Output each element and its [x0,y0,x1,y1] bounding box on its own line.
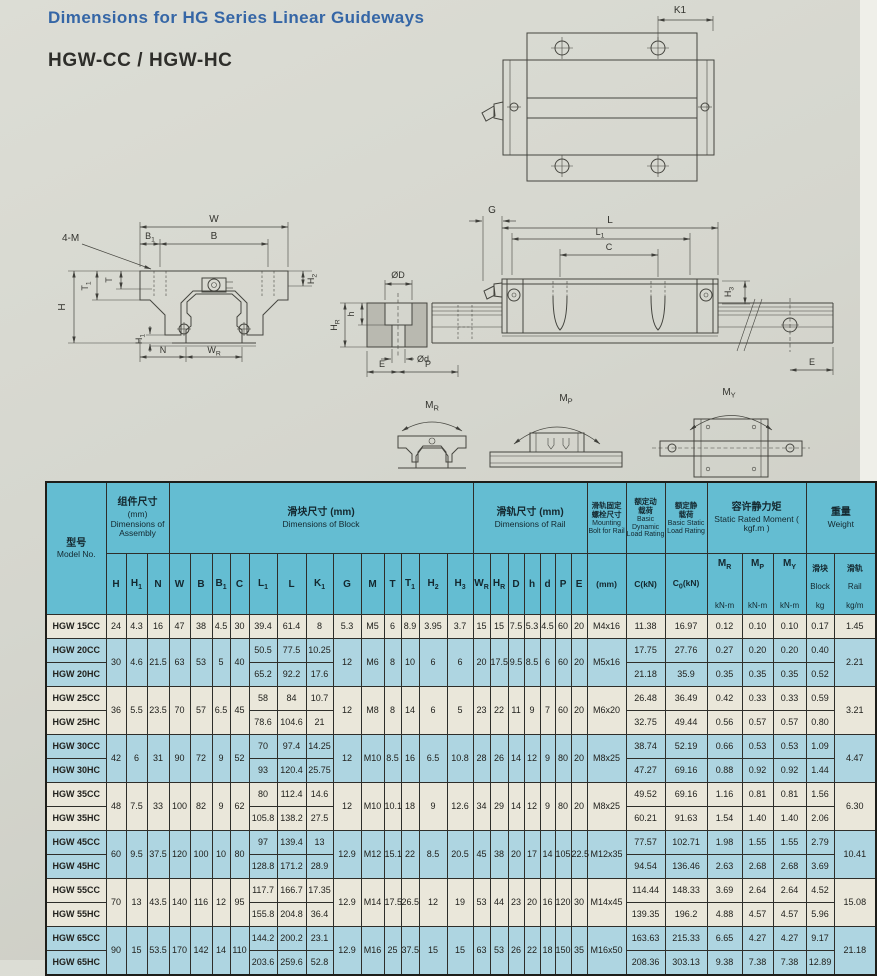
cell-H: 90 [106,927,126,976]
cell-W: 90 [169,735,190,783]
cell-L: 138.2 [277,807,306,831]
cell-W: 170 [169,927,190,976]
col-h-small: h [524,554,540,615]
cell-MP: 0.81 [742,783,773,807]
cell-HR: 17.5 [490,639,508,687]
static-load-header-en: Basic Static Load Rating [666,520,707,535]
cell-B1: 4.5 [212,615,230,639]
dim-label-b1: B1 [145,231,155,244]
cell-B1: 6.5 [212,687,230,735]
cell-d: 16 [540,879,555,927]
cell-N: 31 [147,735,169,783]
cell-C: 47.27 [626,759,665,783]
cell-H3: 19 [447,879,473,927]
cell-L: 204.8 [277,903,306,927]
cell-B: 72 [190,735,212,783]
col-header-model: 型号 Model No. [46,482,106,615]
col-group-moment: 容许静力矩 Static Rated Moment ( kgf.m ) [707,482,806,554]
cell-K1: 52.8 [306,951,333,976]
cell-K1: 10.25 [306,639,333,663]
cell-L1: 105.8 [249,807,277,831]
cell-K1: 36.4 [306,903,333,927]
cell-K1: 23.1 [306,927,333,951]
cell-G: 12 [333,735,361,783]
cell-T1: 10 [401,639,419,687]
cell-W: 100 [169,783,190,831]
cell-H1: 13 [126,879,147,927]
cell-bolt: M6x20 [587,687,626,735]
cell-C: 163.63 [626,927,665,951]
cell-L: 139.4 [277,831,306,855]
col-l1: L1 [249,554,277,615]
moment-my-icon [652,416,810,478]
cell-E: 20 [571,639,587,687]
cell-L1: 144.2 [249,927,277,951]
cell-MY: 4.27 [773,927,806,951]
col-n: N [147,554,169,615]
cell-C: 60.21 [626,807,665,831]
cell-block: 1.56 [806,783,834,807]
cell-E: 35 [571,927,587,976]
dim-label-g: G [488,205,496,216]
table-row: HGW 25CC365.523.570576.545588410.712M881… [46,687,876,711]
cell-C: 45 [230,687,249,735]
cell-MP: 0.33 [742,687,773,711]
cell-M: M6 [361,639,384,687]
cell-MP: 0.92 [742,759,773,783]
cell-MP: 0.53 [742,735,773,759]
cell-H1: 15 [126,927,147,976]
moment-mp-icon [490,427,622,467]
cell-W: 63 [169,639,190,687]
cell-C0: 136.46 [665,855,707,879]
cell-WR: 23 [473,687,490,735]
assembly-header-mm: (mm) [107,510,169,519]
cell-L: 259.6 [277,951,306,976]
cell-MY: 7.38 [773,951,806,976]
cell-B1: 9 [212,735,230,783]
col-l: L [277,554,306,615]
cell-HR: 44 [490,879,508,927]
assembly-header-cn: 组件尺寸 [107,497,169,509]
cell-K1: 27.5 [306,807,333,831]
cell-N: 53.5 [147,927,169,976]
cell-block: 1.09 [806,735,834,759]
cell-B1: 12 [212,879,230,927]
weight-block-cn: 滑块 [812,564,828,573]
cell-H3: 6 [447,639,473,687]
cell-H3: 15 [447,927,473,976]
cell-C: 139.35 [626,903,665,927]
cell-C0: 69.16 [665,759,707,783]
cell-P: 60 [555,639,571,687]
cell-MR: 3.69 [707,879,742,903]
col-bolt-unit: (mm) [587,554,626,615]
bolt-header-en: Mounting Bolt for Rail [588,520,626,535]
catalog-page: { "page": { "title": "Dimensions for HG … [0,0,877,960]
cell-T1: 8.9 [401,615,419,639]
cell-D: 7.5 [508,615,524,639]
dim-label-l: L [607,215,613,226]
block-header-cn: 滑块尺寸 (mm) [170,507,473,519]
moment-header-en: Static Rated Moment ( kgf.m ) [708,515,806,534]
cell-MR: 9.38 [707,951,742,976]
cell-MR: 1.54 [707,807,742,831]
dim-label-w: W [209,214,219,225]
dynamic-load-header-cn: 额定动 载荷 [627,497,665,515]
col-c0-kn: C0(kN) [665,554,707,615]
cell-G: 5.3 [333,615,361,639]
cell-C: 62 [230,783,249,831]
cell-bolt: M16x50 [587,927,626,976]
col-w: W [169,554,190,615]
cell-HR: 29 [490,783,508,831]
cell-E: 22.5 [571,831,587,879]
cell-N: 43.5 [147,879,169,927]
cell-C: 40 [230,639,249,687]
cell-H: 60 [106,831,126,879]
cell-L1: 128.8 [249,855,277,879]
cell-bolt: M8x25 [587,783,626,831]
cell-C0: 16.97 [665,615,707,639]
cell-P: 60 [555,687,571,735]
cell-h: 12 [524,735,540,783]
col-h: H [106,554,126,615]
model-cell: HGW 65CC [46,927,106,951]
cell-H: 42 [106,735,126,783]
cell-MY: 0.35 [773,663,806,687]
cell-block: 9.17 [806,927,834,951]
side-view-drawing: G L L1 C H3 ØD h HR Ød E [329,205,833,377]
mp-unit: kN-m [748,601,767,610]
cell-M: M14 [361,879,384,927]
cell-H: 70 [106,879,126,927]
cell-MR: 0.12 [707,615,742,639]
cell-L: 61.4 [277,615,306,639]
cell-MP: 4.27 [742,927,773,951]
col-weight-block: 滑块Blockkg [806,554,834,615]
cell-WR: 20 [473,639,490,687]
cell-C: 38.74 [626,735,665,759]
col-h3: H3 [447,554,473,615]
model-cell: HGW 20CC [46,639,106,663]
cell-D: 26 [508,927,524,976]
cell-h: 12 [524,783,540,831]
cell-C: 80 [230,831,249,879]
cell-C: 49.52 [626,783,665,807]
cell-MP: 1.40 [742,807,773,831]
cell-H2: 15 [419,927,447,976]
cell-M: M12 [361,831,384,879]
cell-C0: 215.33 [665,927,707,951]
dim-label-4m: 4-M [62,233,79,244]
cell-L1: 117.7 [249,879,277,903]
model-cell: HGW 35HC [46,807,106,831]
assembly-header-en: Dimensions of Assembly [107,520,169,539]
cell-T: 17.5 [384,879,401,927]
cell-K1: 28.9 [306,855,333,879]
cell-HR: 53 [490,927,508,976]
cell-MP: 2.64 [742,879,773,903]
cell-C0: 27.76 [665,639,707,663]
cell-D: 14 [508,735,524,783]
dim-label-od: ØD [391,270,405,280]
cell-MR: 0.88 [707,759,742,783]
dimensions-table: 型号 Model No. 组件尺寸 (mm) Dimensions of Ass… [45,481,877,976]
cell-h: 17 [524,831,540,879]
model-cell: HGW 25CC [46,687,106,711]
col-group-assembly: 组件尺寸 (mm) Dimensions of Assembly [106,482,169,554]
cell-M: M16 [361,927,384,976]
col-group-block: 滑块尺寸 (mm) Dimensions of Block [169,482,473,554]
cell-L1: 70 [249,735,277,759]
cell-L: 166.7 [277,879,306,903]
cell-N: 21.5 [147,639,169,687]
cell-C0: 49.44 [665,711,707,735]
cell-L: 104.6 [277,711,306,735]
cell-P: 80 [555,783,571,831]
cell-E: 30 [571,879,587,927]
cell-H2: 6 [419,687,447,735]
cell-M: M10 [361,783,384,831]
cell-T: 25 [384,927,401,976]
cell-block: 4.52 [806,879,834,903]
cell-rail: 15.08 [834,879,876,927]
cell-C: 94.54 [626,855,665,879]
cell-H2: 6.5 [419,735,447,783]
weight-header-cn: 重量 [807,507,876,519]
cell-K1: 21 [306,711,333,735]
cell-HR: 38 [490,831,508,879]
dim-label-h3: H3 [723,287,736,298]
moment-header-cn: 容许静力矩 [708,502,806,514]
dim-label-h-small: h [346,311,356,316]
cell-W: 140 [169,879,190,927]
table-row: HGW 55CC701343.51401161295117.7166.717.3… [46,879,876,903]
col-p: P [555,554,571,615]
cell-D: 9.5 [508,639,524,687]
cell-d: 9 [540,735,555,783]
cell-K1: 8 [306,615,333,639]
cell-h: 20 [524,879,540,927]
cell-MP: 0.35 [742,663,773,687]
cell-H: 24 [106,615,126,639]
cell-H1: 6 [126,735,147,783]
cell-H1: 7.5 [126,783,147,831]
cell-W: 120 [169,831,190,879]
cell-K1: 25.75 [306,759,333,783]
col-weight-rail: 滑轨Railkg/m [834,554,876,615]
cell-HR: 15 [490,615,508,639]
cell-C0: 303.13 [665,951,707,976]
cell-d: 14 [540,831,555,879]
my-label: MY [783,558,796,571]
dynamic-load-header-en: Basic Dynamic Load Rating [627,516,665,539]
col-t1: T1 [401,554,419,615]
cell-MY: 0.53 [773,735,806,759]
cell-bolt: M4x16 [587,615,626,639]
cell-B1: 5 [212,639,230,687]
table-header: 型号 Model No. 组件尺寸 (mm) Dimensions of Ass… [46,482,876,615]
cell-C0: 69.16 [665,783,707,807]
cell-d: 7 [540,687,555,735]
weight-block-unit: kg [816,601,824,610]
cell-block: 0.17 [806,615,834,639]
cell-B1: 14 [212,927,230,976]
mr-label: MR [718,558,731,571]
cell-H2: 6 [419,639,447,687]
cell-h: 9 [524,687,540,735]
cell-L: 84 [277,687,306,711]
model-cell: HGW 20HC [46,663,106,687]
moment-my-label: MY [722,387,735,400]
cell-H2: 3.95 [419,615,447,639]
cell-rail: 2.21 [834,639,876,687]
cell-rail: 10.41 [834,831,876,879]
cell-L: 171.2 [277,855,306,879]
cell-HR: 22 [490,687,508,735]
col-h2: H2 [419,554,447,615]
dim-label-n: N [160,345,167,355]
cell-MR: 0.35 [707,663,742,687]
cell-C0: 36.49 [665,687,707,711]
model-cell: HGW 25HC [46,711,106,735]
cell-d: 18 [540,927,555,976]
weight-rail-unit: kg/m [846,601,863,610]
cell-L1: 50.5 [249,639,277,663]
col-h1: H1 [126,554,147,615]
cell-bolt: M14x45 [587,879,626,927]
cell-H3: 5 [447,687,473,735]
cell-B: 53 [190,639,212,687]
dim-label-h: H [57,303,68,310]
cell-E: 20 [571,687,587,735]
cell-L1: 93 [249,759,277,783]
dim-label-e-left: E [379,359,385,369]
cell-MY: 0.92 [773,759,806,783]
cell-G: 12.9 [333,927,361,976]
cell-block: 0.59 [806,687,834,711]
model-header-en: Model No. [47,550,106,559]
technical-drawing: K1 W B1 B 4-M T [0,0,877,481]
cell-MY: 0.33 [773,687,806,711]
col-t: T [384,554,401,615]
cell-T1: 22 [401,831,419,879]
cell-L1: 39.4 [249,615,277,639]
dim-label-k1: K1 [674,5,687,16]
cell-G: 12.9 [333,831,361,879]
cell-L1: 65.2 [249,663,277,687]
cell-G: 12 [333,639,361,687]
cell-C: 208.36 [626,951,665,976]
cell-C: 77.57 [626,831,665,855]
cell-W: 70 [169,687,190,735]
col-k1: K1 [306,554,333,615]
cell-H2: 9 [419,783,447,831]
table-body: HGW 15CC244.31647384.53039.461.485.3M568… [46,615,876,976]
col-d-small: d [540,554,555,615]
col-m: M [361,554,384,615]
cell-T1: 18 [401,783,419,831]
dim-label-hr: HR [329,319,342,331]
cell-B: 142 [190,927,212,976]
cell-H3: 20.5 [447,831,473,879]
cell-MY: 0.81 [773,783,806,807]
cell-d: 4.5 [540,615,555,639]
table-row: HGW 35CC487.5331008296280112.414.612M101… [46,783,876,807]
cell-W: 47 [169,615,190,639]
cell-MR: 0.56 [707,711,742,735]
cell-bolt: M8x25 [587,735,626,783]
cell-T1: 14 [401,687,419,735]
cell-C0: 52.19 [665,735,707,759]
cell-C0: 102.71 [665,831,707,855]
bolt-header-cn: 滑轨固定 螺栓尺寸 [588,501,626,519]
moment-mp-label: MP [559,393,572,406]
cell-rail: 21.18 [834,927,876,976]
dim-label-b: B [211,231,218,242]
cell-rail: 3.21 [834,687,876,735]
cell-C: 95 [230,879,249,927]
cell-block: 2.06 [806,807,834,831]
model-cell: HGW 15CC [46,615,106,639]
cell-MY: 0.57 [773,711,806,735]
col-c-kn: C(kN) [626,554,665,615]
col-b: B [190,554,212,615]
cell-block: 3.69 [806,855,834,879]
cell-B1: 9 [212,783,230,831]
cell-WR: 15 [473,615,490,639]
cell-bolt: M12x35 [587,831,626,879]
cell-H1: 4.3 [126,615,147,639]
table-row: HGW 45CC609.537.5120100108097139.41312.9… [46,831,876,855]
cell-L1: 97 [249,831,277,855]
block-header-en: Dimensions of Block [170,520,473,529]
weight-header-en: Weight [807,520,876,529]
model-cell: HGW 30HC [46,759,106,783]
cell-C: 11.38 [626,615,665,639]
col-group-weight: 重量 Weight [806,482,876,554]
cell-T: 6 [384,615,401,639]
rail-header-cn: 滑轨尺寸 (mm) [474,507,587,519]
col-g: G [333,554,361,615]
model-header-cn: 型号 [47,538,106,550]
dim-label-wr: WR [207,345,221,358]
cell-G: 12.9 [333,879,361,927]
cell-MP: 0.20 [742,639,773,663]
cell-T: 8 [384,687,401,735]
model-cell: HGW 35CC [46,783,106,807]
cell-H: 30 [106,639,126,687]
cell-rail: 6.30 [834,783,876,831]
cell-MY: 2.68 [773,855,806,879]
rail-header-en: Dimensions of Rail [474,520,587,529]
cell-P: 150 [555,927,571,976]
cell-T1: 26.5 [401,879,419,927]
cell-N: 37.5 [147,831,169,879]
cell-P: 60 [555,615,571,639]
cell-rail: 4.47 [834,735,876,783]
cell-MR: 0.27 [707,639,742,663]
cell-K1: 10.7 [306,687,333,711]
cell-WR: 45 [473,831,490,879]
cell-C0: 35.9 [665,663,707,687]
cell-block: 1.44 [806,759,834,783]
cell-WR: 34 [473,783,490,831]
model-cell: HGW 55HC [46,903,106,927]
dim-label-c: C [606,242,613,252]
cell-C0: 91.63 [665,807,707,831]
